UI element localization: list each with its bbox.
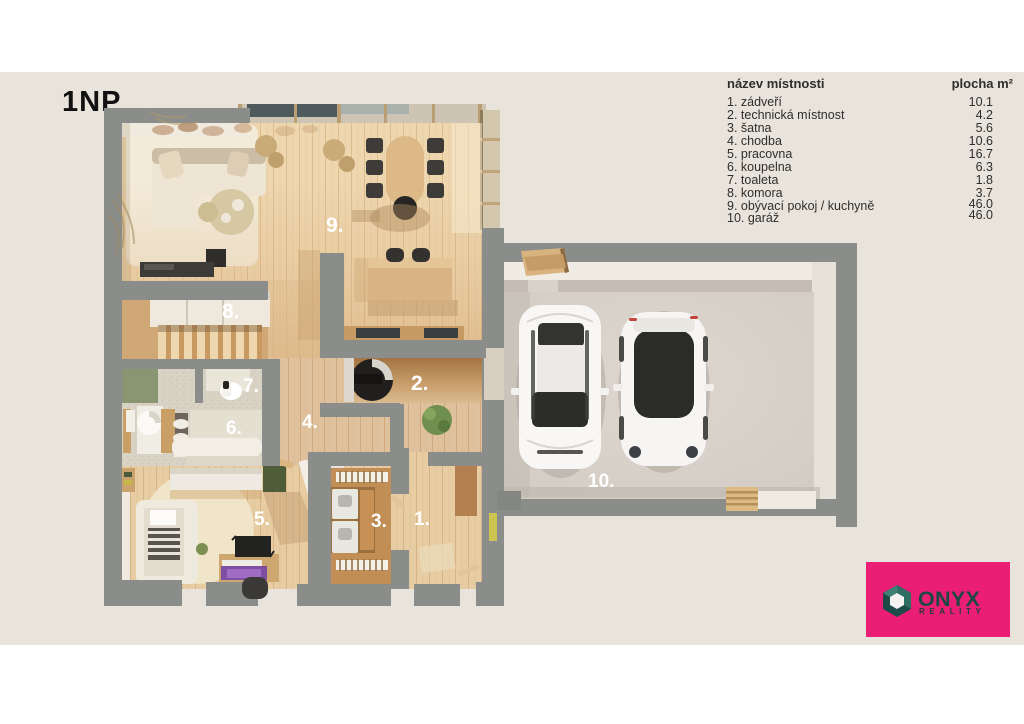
svg-text:10.: 10. (588, 471, 614, 492)
svg-text:2.: 2. (411, 372, 429, 395)
svg-text:10.6: 10.6 (969, 134, 993, 148)
svg-text:46.0: 46.0 (969, 208, 993, 222)
svg-text:4.2: 4.2 (976, 108, 993, 122)
svg-text:6.3: 6.3 (976, 160, 993, 174)
svg-text:8.: 8. (222, 300, 240, 323)
svg-text:5. pracovna: 5. pracovna (727, 147, 792, 161)
svg-text:10.1: 10.1 (969, 95, 993, 109)
svg-text:4. chodba: 4. chodba (727, 134, 782, 148)
svg-text:3. šatna: 3. šatna (727, 121, 772, 135)
svg-text:6. koupelna: 6. koupelna (727, 160, 792, 174)
svg-text:10. garáž: 10. garáž (727, 211, 779, 225)
svg-text:7.: 7. (243, 376, 259, 397)
svg-text:9.: 9. (326, 214, 344, 237)
svg-text:název místnosti: název místnosti (727, 76, 825, 91)
svg-text:16.7: 16.7 (969, 147, 993, 161)
svg-text:6.: 6. (226, 418, 242, 439)
svg-text:5.: 5. (254, 509, 270, 530)
svg-text:1. zádveří: 1. zádveří (727, 95, 782, 109)
svg-text:1.8: 1.8 (976, 173, 993, 187)
svg-text:3.: 3. (371, 511, 387, 532)
svg-text:plocha m²: plocha m² (952, 76, 1014, 91)
svg-text:4.: 4. (302, 412, 318, 433)
svg-text:1.: 1. (414, 509, 430, 530)
svg-text:5.6: 5.6 (976, 121, 993, 135)
svg-text:8. komora: 8. komora (727, 186, 783, 200)
svg-text:REALITY: REALITY (919, 607, 985, 616)
svg-text:7. toaleta: 7. toaleta (727, 173, 778, 187)
svg-text:2. technická místnost: 2. technická místnost (727, 108, 845, 122)
